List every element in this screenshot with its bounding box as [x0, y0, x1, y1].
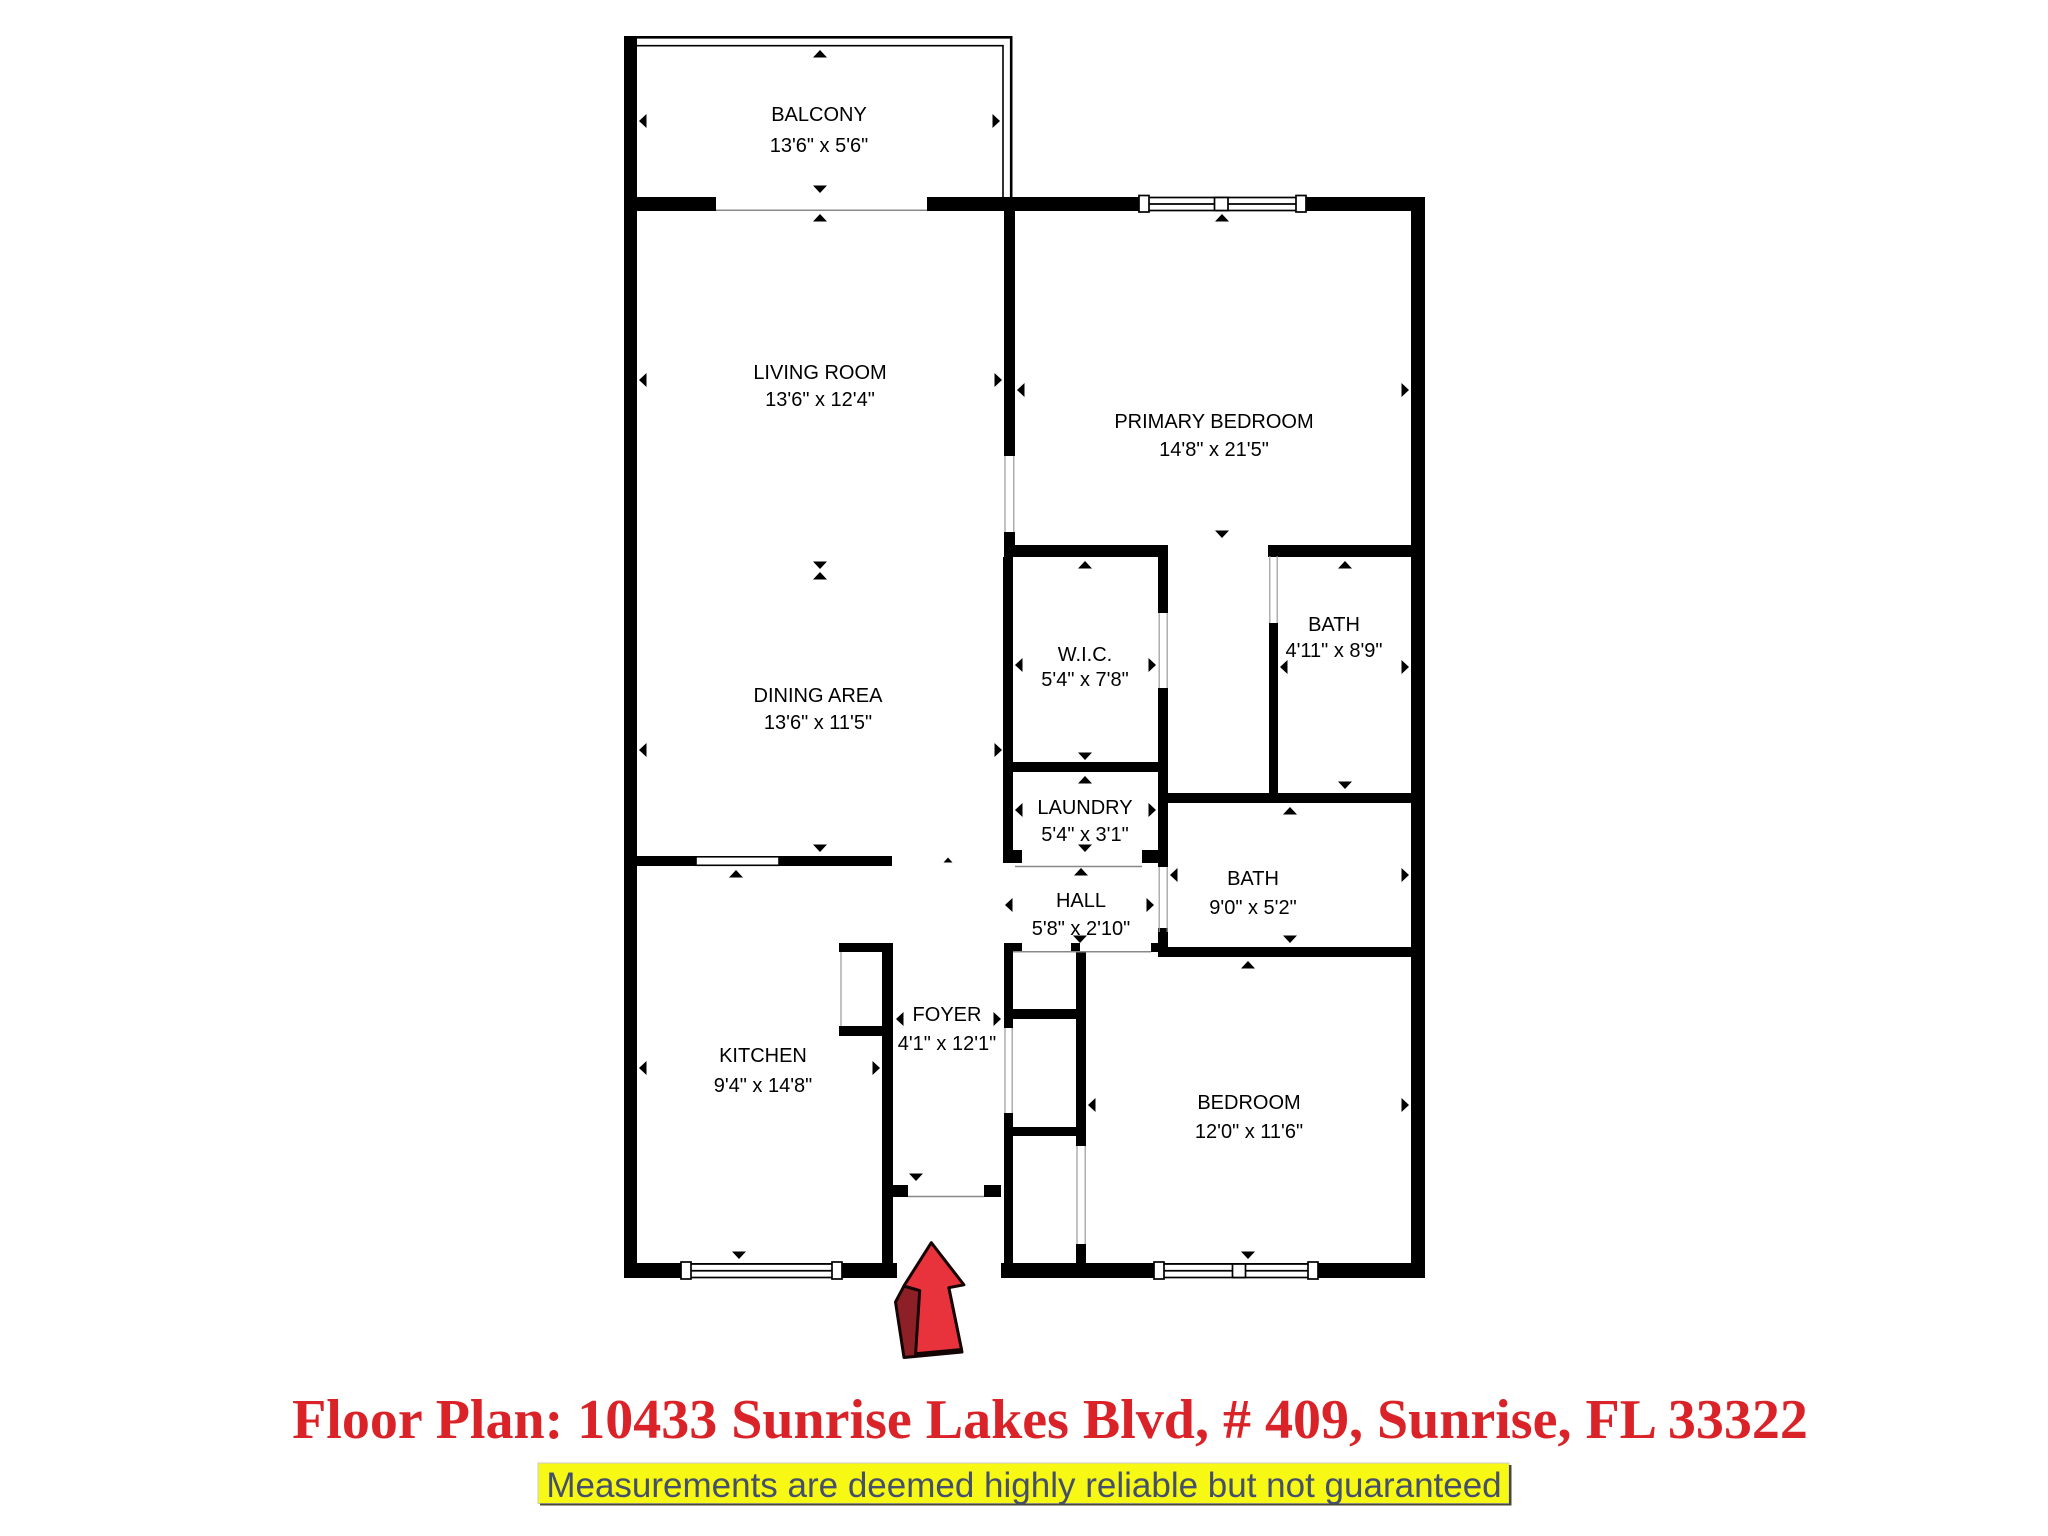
- svg-text:14'8" x 21'5": 14'8" x 21'5": [1159, 439, 1269, 461]
- svg-text:13'6" x 11'5": 13'6" x 11'5": [764, 712, 872, 734]
- svg-text:5'4" x 7'8": 5'4" x 7'8": [1041, 669, 1128, 691]
- svg-text:BEDROOM: BEDROOM: [1197, 1092, 1300, 1114]
- svg-text:4'11" x 8'9": 4'11" x 8'9": [1285, 640, 1382, 662]
- svg-text:BALCONY: BALCONY: [771, 104, 867, 126]
- svg-text:4'1" x 12'1": 4'1" x 12'1": [898, 1033, 997, 1055]
- svg-text:HALL: HALL: [1056, 890, 1106, 912]
- svg-text:9'4" x 14'8": 9'4" x 14'8": [714, 1075, 813, 1097]
- svg-text:DINING AREA: DINING AREA: [754, 685, 884, 707]
- svg-text:13'6" x 12'4": 13'6" x 12'4": [765, 389, 875, 411]
- svg-text:KITCHEN: KITCHEN: [719, 1045, 807, 1067]
- svg-text:BATH: BATH: [1308, 614, 1360, 636]
- svg-text:W.I.C.: W.I.C.: [1058, 644, 1112, 666]
- svg-text:12'0" x 11'6": 12'0" x 11'6": [1195, 1121, 1303, 1143]
- svg-text:5'4" x 3'1": 5'4" x 3'1": [1041, 824, 1128, 846]
- svg-text:Measurements are deemed highly: Measurements are deemed highly reliable …: [546, 1466, 1501, 1505]
- svg-text:FOYER: FOYER: [913, 1004, 982, 1026]
- svg-text:LIVING ROOM: LIVING ROOM: [753, 362, 886, 384]
- svg-text:13'6" x 5'6": 13'6" x 5'6": [770, 135, 869, 157]
- svg-text:BATH: BATH: [1227, 868, 1279, 890]
- svg-text:Floor Plan: 10433 Sunrise Lake: Floor Plan: 10433 Sunrise Lakes Blvd, # …: [292, 1389, 1808, 1451]
- svg-text:PRIMARY BEDROOM: PRIMARY BEDROOM: [1114, 411, 1313, 433]
- svg-text:9'0" x 5'2": 9'0" x 5'2": [1209, 897, 1296, 919]
- svg-text:LAUNDRY: LAUNDRY: [1037, 797, 1132, 819]
- svg-text:5'8" x 2'10": 5'8" x 2'10": [1032, 918, 1131, 940]
